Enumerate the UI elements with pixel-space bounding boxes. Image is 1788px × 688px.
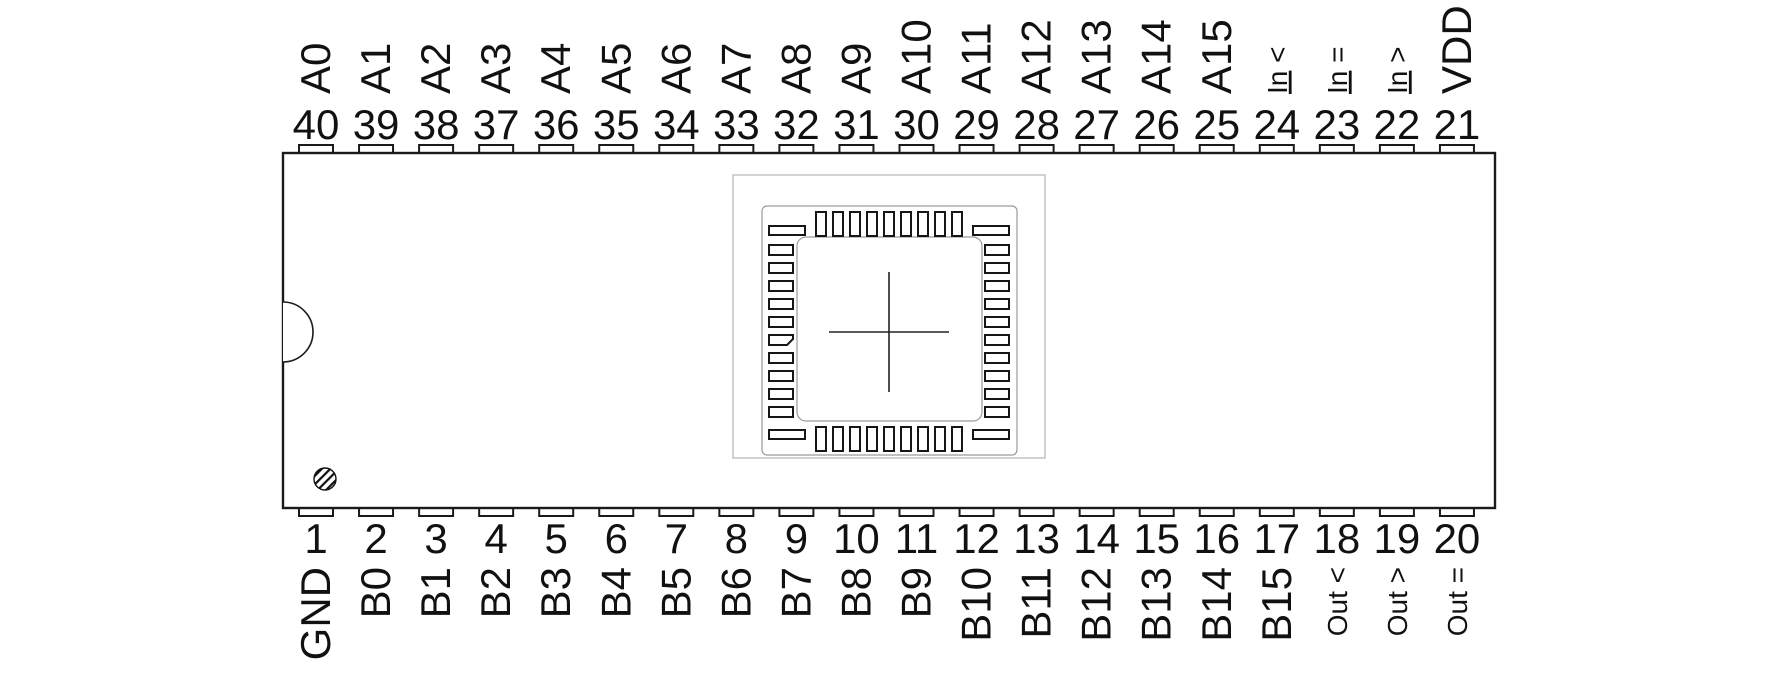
pin-number-36: 36 bbox=[533, 101, 580, 148]
pad-right bbox=[985, 407, 1009, 417]
pin-number-9: 9 bbox=[785, 515, 808, 562]
pin-label-40: A0 bbox=[292, 43, 339, 94]
pad-top bbox=[901, 212, 911, 236]
pin-number-26: 26 bbox=[1133, 101, 1180, 148]
pin-number-37: 37 bbox=[473, 101, 520, 148]
pin-number-24: 24 bbox=[1253, 101, 1300, 148]
pin-label-13: B11 bbox=[1013, 567, 1060, 639]
pad-top bbox=[952, 212, 962, 236]
pad-right bbox=[985, 389, 1009, 399]
pin-label-37: A3 bbox=[472, 43, 519, 94]
pad-left-chamfered bbox=[769, 335, 793, 345]
pin-label-6: B4 bbox=[592, 567, 639, 618]
pin-number-3: 3 bbox=[424, 515, 447, 562]
pin-number-17: 17 bbox=[1253, 515, 1300, 562]
pin-label-18: Out < bbox=[1322, 567, 1353, 636]
pad-bottom bbox=[867, 427, 877, 451]
pin-number-27: 27 bbox=[1073, 101, 1120, 148]
pad-left bbox=[769, 371, 793, 381]
pin-label-2: B0 bbox=[352, 567, 399, 618]
pin-number-40: 40 bbox=[293, 101, 340, 148]
pad-corner bbox=[769, 430, 805, 439]
pad-corner bbox=[973, 430, 1009, 439]
pin-label-7: B5 bbox=[652, 567, 699, 618]
pad-bottom bbox=[935, 427, 945, 451]
pin-label-33: A7 bbox=[712, 43, 759, 94]
pad-top bbox=[884, 212, 894, 236]
pin-label-22: In > bbox=[1382, 47, 1413, 95]
pad-right bbox=[985, 371, 1009, 381]
pin-label-30: A10 bbox=[893, 19, 940, 94]
pin-number-12: 12 bbox=[953, 515, 1000, 562]
pin-number-5: 5 bbox=[545, 515, 568, 562]
pin-number-16: 16 bbox=[1193, 515, 1240, 562]
pad-bottom bbox=[850, 427, 860, 451]
pin-label-1: GND bbox=[292, 567, 339, 660]
pin-number-11: 11 bbox=[895, 515, 939, 562]
pad-top bbox=[918, 212, 928, 236]
pad-corner bbox=[973, 226, 1009, 235]
pad-right bbox=[985, 281, 1009, 291]
pin-label-3: B1 bbox=[412, 567, 459, 618]
pin-number-1: 1 bbox=[304, 515, 327, 562]
pin-label-35: A5 bbox=[592, 43, 639, 94]
pin-label-14: B12 bbox=[1073, 567, 1120, 642]
pin-number-34: 34 bbox=[653, 101, 700, 148]
pin-label-25: A15 bbox=[1193, 19, 1240, 94]
pinout-svg: 40A039A138A237A336A435A534A633A732A831A9… bbox=[0, 0, 1788, 688]
pin-label-4: B2 bbox=[472, 567, 519, 618]
pad-left bbox=[769, 281, 793, 291]
pad-right bbox=[985, 299, 1009, 309]
pin-number-15: 15 bbox=[1133, 515, 1180, 562]
pad-right bbox=[985, 317, 1009, 327]
pin-label-21: VDD bbox=[1433, 5, 1480, 94]
pin-label-19: Out > bbox=[1382, 567, 1413, 636]
pad-bottom bbox=[884, 427, 894, 451]
pin-label-36: A4 bbox=[532, 43, 579, 94]
ic-pinout-diagram: 40A039A138A237A336A435A534A633A732A831A9… bbox=[0, 0, 1788, 688]
pin-label-12: B10 bbox=[953, 567, 1000, 642]
pin-number-33: 33 bbox=[713, 101, 760, 148]
pin-number-6: 6 bbox=[605, 515, 628, 562]
pin-number-29: 29 bbox=[953, 101, 1000, 148]
pad-bottom bbox=[952, 427, 962, 451]
pad-top bbox=[850, 212, 860, 236]
pad-top bbox=[867, 212, 877, 236]
pin-label-8: B6 bbox=[712, 567, 759, 618]
pin-label-10: B8 bbox=[832, 567, 879, 618]
pad-left bbox=[769, 407, 793, 417]
pin-label-23: In = bbox=[1322, 47, 1353, 95]
pin-label-24: In < bbox=[1262, 47, 1293, 95]
pin-number-32: 32 bbox=[773, 101, 820, 148]
pin-number-21: 21 bbox=[1434, 101, 1481, 148]
pad-right bbox=[985, 335, 1009, 345]
pin-number-18: 18 bbox=[1313, 515, 1360, 562]
pin-number-10: 10 bbox=[833, 515, 880, 562]
pin-number-31: 31 bbox=[833, 101, 880, 148]
pad-left bbox=[769, 299, 793, 309]
pin-label-9: B7 bbox=[772, 567, 819, 618]
pin-number-4: 4 bbox=[484, 515, 507, 562]
pin-label-17: B15 bbox=[1253, 567, 1300, 642]
pin-number-38: 38 bbox=[413, 101, 460, 148]
pad-top bbox=[816, 212, 826, 236]
pad-bottom bbox=[901, 427, 911, 451]
pin-number-23: 23 bbox=[1313, 101, 1360, 148]
pin-label-16: B14 bbox=[1193, 567, 1240, 642]
pad-left bbox=[769, 263, 793, 273]
pin-label-34: A6 bbox=[652, 43, 699, 94]
pin-number-7: 7 bbox=[665, 515, 688, 562]
pin-number-19: 19 bbox=[1374, 515, 1421, 562]
pin-label-29: A11 bbox=[953, 22, 1000, 94]
pad-right bbox=[985, 245, 1009, 255]
pad-left bbox=[769, 389, 793, 399]
pad-left bbox=[769, 317, 793, 327]
pad-bottom bbox=[918, 427, 928, 451]
pin-label-32: A8 bbox=[772, 43, 819, 94]
pin-label-20: Out = bbox=[1442, 567, 1473, 636]
pin-label-11: B9 bbox=[893, 567, 940, 618]
pad-right bbox=[985, 263, 1009, 273]
pad-corner bbox=[769, 226, 805, 235]
pin-number-25: 25 bbox=[1193, 101, 1240, 148]
pad-top bbox=[935, 212, 945, 236]
pad-top bbox=[833, 212, 843, 236]
pin-number-14: 14 bbox=[1073, 515, 1120, 562]
pad-left bbox=[769, 245, 793, 255]
pin1-indicator-dot bbox=[314, 468, 336, 490]
pin-number-39: 39 bbox=[353, 101, 400, 148]
pin-label-39: A1 bbox=[352, 43, 399, 94]
pin-label-26: A14 bbox=[1133, 19, 1180, 94]
pin-label-5: B3 bbox=[532, 567, 579, 618]
pin-number-2: 2 bbox=[364, 515, 387, 562]
pin-number-8: 8 bbox=[725, 515, 748, 562]
pin-label-38: A2 bbox=[412, 43, 459, 94]
pin-label-15: B13 bbox=[1133, 567, 1180, 642]
pad-right bbox=[985, 353, 1009, 363]
pin-label-28: A12 bbox=[1013, 19, 1060, 94]
pin-number-30: 30 bbox=[893, 101, 940, 148]
pin-number-13: 13 bbox=[1013, 515, 1060, 562]
pin-number-20: 20 bbox=[1434, 515, 1481, 562]
pin-label-27: A13 bbox=[1073, 19, 1120, 94]
pad-bottom bbox=[816, 427, 826, 451]
pin-number-22: 22 bbox=[1374, 101, 1421, 148]
pin-label-31: A9 bbox=[832, 43, 879, 94]
pad-bottom bbox=[833, 427, 843, 451]
pin-number-35: 35 bbox=[593, 101, 640, 148]
pin-number-28: 28 bbox=[1013, 101, 1060, 148]
pad-left bbox=[769, 353, 793, 363]
